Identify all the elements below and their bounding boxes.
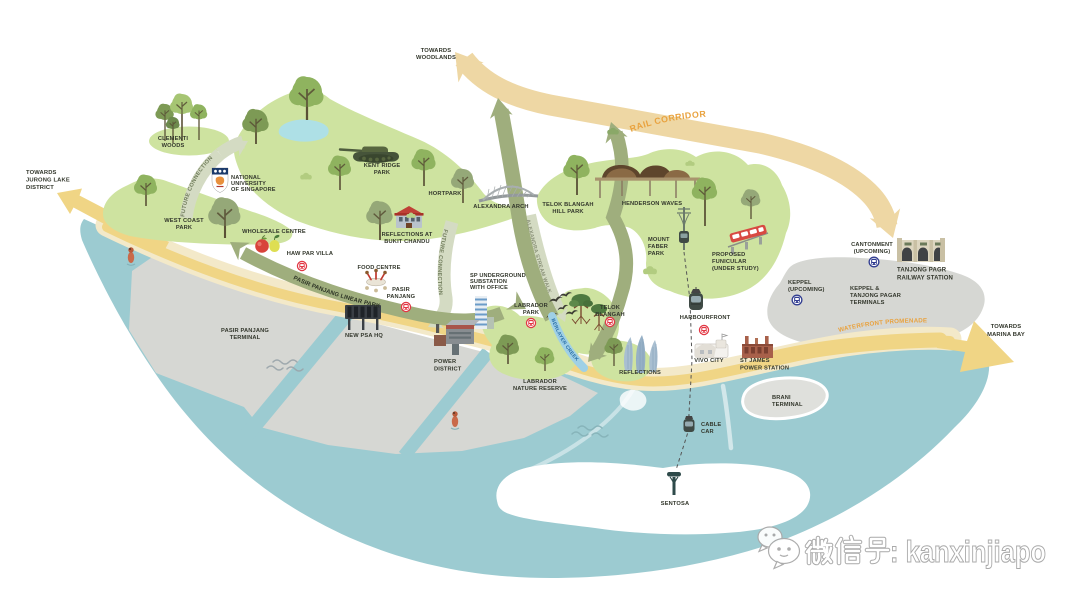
svg-text:HAW PAR VILLA: HAW PAR VILLA [287, 251, 333, 257]
svg-text:VIVO CITY: VIVO CITY [694, 358, 724, 364]
svg-text:ALEXANDRA ARCH: ALEXANDRA ARCH [473, 204, 528, 210]
svg-text:HENDERSON WAVES: HENDERSON WAVES [622, 201, 682, 207]
svg-text:SENTOSA: SENTOSA [661, 501, 689, 507]
svg-text:HARBOURFRONT: HARBOURFRONT [680, 315, 731, 321]
svg-text:: kanxinjiapo: : kanxinjiapo [890, 534, 1046, 569]
svg-text:REFLECTIONS: REFLECTIONS [619, 370, 661, 376]
svg-text:NEW PSA HQ: NEW PSA HQ [345, 333, 383, 339]
svg-text:HORTPARK: HORTPARK [428, 191, 462, 197]
svg-text:FOOD CENTRE: FOOD CENTRE [357, 265, 400, 271]
svg-text:REFLECTIONS ATBUKIT CHANDU: REFLECTIONS ATBUKIT CHANDU [382, 232, 433, 245]
svg-text:TOWARDSWOODLANDS: TOWARDSWOODLANDS [416, 48, 456, 61]
svg-text:CLEMENTIWOODS: CLEMENTIWOODS [158, 136, 189, 149]
svg-text:TANJONG PAGRRAILWAY STATION: TANJONG PAGRRAILWAY STATION [897, 268, 953, 282]
svg-text:WHOLESALE CENTRE: WHOLESALE CENTRE [242, 229, 306, 235]
svg-text:CANTONMENT(UPCOMING): CANTONMENT(UPCOMING) [851, 242, 893, 255]
